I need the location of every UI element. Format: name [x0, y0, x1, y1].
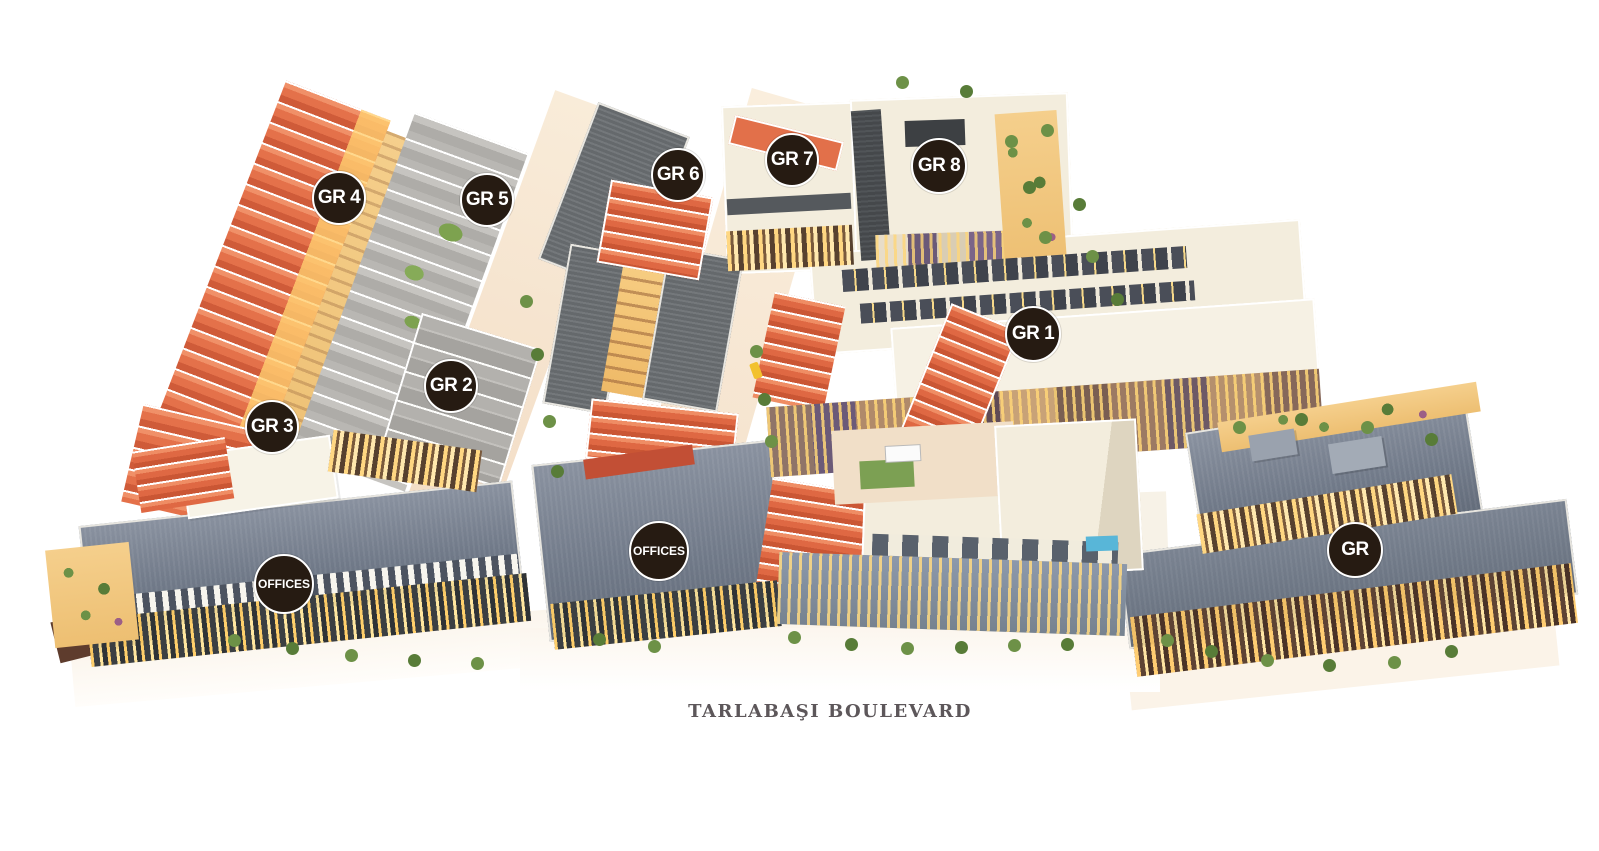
- marker-gr4[interactable]: GR 4: [312, 171, 366, 225]
- marker-gr7-label: GR 7: [771, 149, 813, 171]
- marker-offices-west[interactable]: OFFICES: [254, 554, 314, 614]
- marker-gr5[interactable]: GR 5: [460, 173, 514, 227]
- marker-gr6[interactable]: GR 6: [651, 148, 705, 202]
- marker-offices-center-label: OFFICES: [633, 544, 685, 558]
- marker-gr5-label: GR 5: [466, 189, 508, 211]
- marker-gr1-label: GR 1: [1012, 323, 1054, 345]
- marker-gr3[interactable]: GR 3: [245, 400, 299, 454]
- swimming-pool: [1086, 535, 1119, 551]
- marker-gr-east[interactable]: GR: [1327, 522, 1383, 578]
- marker-gr6-label: GR 6: [657, 164, 699, 186]
- boulevard-label: TARLABAŞI BOULEVARD: [600, 701, 1060, 722]
- street-trees: [0, 0, 13, 13]
- marker-gr2[interactable]: GR 2: [424, 359, 478, 413]
- gr7-street-facade: [726, 225, 854, 272]
- marker-gr8[interactable]: GR 8: [911, 138, 967, 194]
- masterplan-aerial-view: GR 4 GR 5 GR 6 GR 7 GR 8 GR 1 GR 2 GR 3 …: [0, 0, 1599, 851]
- marker-gr7[interactable]: GR 7: [765, 133, 819, 187]
- south-central-facades: [777, 552, 1127, 636]
- marker-gr-east-label: GR: [1341, 539, 1369, 561]
- white-van: [886, 445, 921, 462]
- gr1-courtyard-lawn: [859, 459, 914, 490]
- marker-gr3-label: GR 3: [251, 416, 293, 438]
- marker-gr2-label: GR 2: [430, 375, 472, 397]
- offices-west-roof-garden: [45, 542, 139, 648]
- gr8-roof-garden: [995, 110, 1068, 272]
- marker-offices-center[interactable]: OFFICES: [629, 521, 689, 581]
- marker-gr8-label: GR 8: [918, 155, 960, 177]
- marker-gr1[interactable]: GR 1: [1005, 306, 1061, 362]
- marker-offices-west-label: OFFICES: [258, 577, 310, 591]
- marker-gr4-label: GR 4: [318, 187, 360, 209]
